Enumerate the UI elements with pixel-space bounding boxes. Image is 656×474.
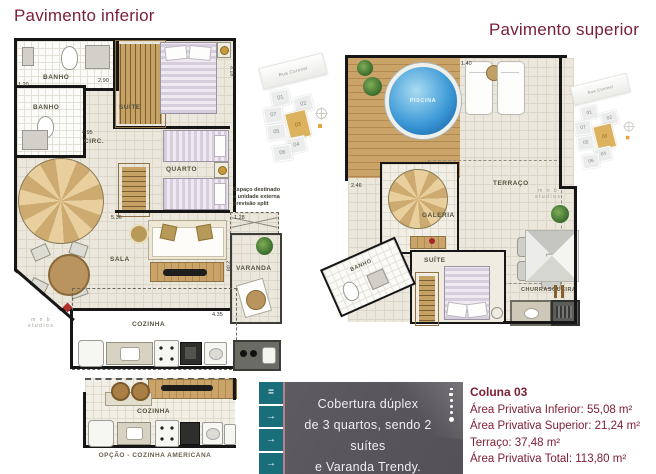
sink-counter <box>117 422 151 445</box>
oven-icon <box>180 422 200 445</box>
upper-floor-title: Pavimento superior <box>489 20 639 40</box>
lower-floor-plan: BANHO BANHO SUÍTE CIRC. QUARTO <box>14 38 284 378</box>
sink-counter <box>106 342 153 365</box>
room-label: COZINHA <box>132 321 165 328</box>
unit-info-line: Área Privativa Inferior: 55,08 m² <box>470 402 640 419</box>
compass-icon <box>624 122 634 132</box>
room-label: BANHO <box>43 74 69 81</box>
dim-label: 2.46 <box>351 183 362 189</box>
bathroom-2: BANHO <box>14 85 86 158</box>
banner-box: Cobertura dúplex de 3 quartos, sendo 2 s… <box>285 382 463 474</box>
banner-menu-icon[interactable]: = <box>259 382 283 404</box>
room-label: GALERIA <box>422 212 455 219</box>
dim-label: 2.08 <box>224 261 230 272</box>
pool: PISCINA <box>385 63 461 139</box>
gourmet-counter <box>233 340 281 371</box>
stove-icon <box>154 340 179 367</box>
compass-icon <box>316 108 327 119</box>
banner-nav-strip: = → → → <box>259 382 283 474</box>
banner-arrow-icon[interactable]: → <box>259 427 283 451</box>
suite-bed <box>444 266 490 320</box>
banner-arrow-icon[interactable]: → <box>259 451 283 474</box>
banner-text: Cobertura dúplex de 3 quartos, sendo 2 s… <box>285 394 451 474</box>
plant-icon <box>256 237 273 255</box>
stool <box>491 307 503 319</box>
bedroom-bed-2 <box>163 178 229 210</box>
decor-red <box>429 238 435 244</box>
stool <box>111 382 130 401</box>
oven-icon <box>180 342 202 365</box>
room-label: BANHO <box>33 104 59 111</box>
side-table <box>129 224 149 244</box>
key-plan-unit: 06 <box>272 144 293 162</box>
room-label: BANHO <box>350 258 373 273</box>
balcony-table <box>246 290 266 310</box>
dim-label: 5.36 <box>111 215 122 221</box>
room-label: COZINHA <box>137 408 170 415</box>
dim-label: 1.28 <box>234 215 245 221</box>
key-plan-lower: Rua Coronel 01 02 07 03 05 04 06 <box>254 56 332 168</box>
room-label: TERRAÇO <box>493 180 529 187</box>
spiral-stairs <box>388 169 448 229</box>
banner-arrow-icon[interactable]: → <box>259 404 283 428</box>
key-plan-unit: 06 <box>582 153 601 169</box>
pergola-mark: ⌐ <box>546 249 551 259</box>
room-label: PISCINA <box>389 98 457 104</box>
dim-label: 4.95 <box>82 130 93 136</box>
dim-label: 2.90 <box>98 78 109 84</box>
tv-sideboard <box>150 262 224 282</box>
key-plan-unit: 05 <box>577 135 596 151</box>
option-caption: OPÇÃO - COZINHA AMERICANA <box>65 452 245 459</box>
dots-ornament <box>448 388 454 422</box>
suite-bed <box>160 42 217 114</box>
unit-info-panel: Coluna 03 Área Privativa Inferior: 55,08… <box>470 384 640 468</box>
kitchen-option-plan: COZINHA OPÇÃO - COZINHA AMERICANA <box>65 378 245 472</box>
stove-icon <box>155 420 179 447</box>
pergola-roof: ⌐ <box>525 230 579 282</box>
sideboard <box>410 236 446 249</box>
cabinet <box>224 424 236 445</box>
room-label: CHURRASQUEIRA <box>521 287 576 293</box>
nightstand <box>217 42 231 58</box>
unit-color-swatch <box>626 136 630 140</box>
plant-icon <box>551 205 569 223</box>
key-plan-upper: Rua Coronel 01 02 07 03 05 04 06 <box>566 76 635 175</box>
room-label: CIRC. <box>84 138 104 145</box>
room-label: VARANDA <box>236 265 272 272</box>
washtub-icon <box>202 422 223 445</box>
sofa <box>148 220 227 260</box>
sun-lounger <box>497 61 525 115</box>
toilet-icon <box>340 279 362 303</box>
shower-icon <box>22 130 48 150</box>
upper-suite: SUÍTE <box>410 250 506 324</box>
sink-icon <box>22 47 34 66</box>
sink-icon <box>366 268 389 290</box>
unit-info-line: Área Privativa Superior: 21,24 m² <box>470 418 640 435</box>
upper-floor-plan: PISCINA TERRAÇO GALERIA SUÍTE <box>345 55 590 375</box>
key-plan-unit: 07 <box>574 120 593 136</box>
unit-info-line: Terraço: 37,48 m² <box>470 435 640 452</box>
unit-info-title: Coluna 03 <box>470 384 640 401</box>
balcony: VARANDA <box>230 233 282 324</box>
dim-label: 1.40 <box>461 61 472 67</box>
unit-color-swatch <box>318 124 322 128</box>
street-band: Rua Coronel <box>258 52 327 89</box>
studio-watermark: m n bstudios <box>535 188 561 200</box>
lower-floor-title: Pavimento inferior <box>14 6 155 26</box>
dim-label: 4.35 <box>212 312 223 318</box>
grill-chimney <box>554 285 557 298</box>
plant-icon <box>363 77 382 96</box>
fridge-icon <box>88 420 114 447</box>
grill-chimney <box>561 285 564 298</box>
toilet-icon <box>61 46 78 70</box>
studio-watermark: m n bstudios <box>28 317 54 329</box>
room-label: SUÍTE <box>119 104 141 111</box>
dim-label: 3.18 <box>228 66 234 77</box>
washtub-icon <box>204 342 227 365</box>
key-plan-unit: 07 <box>263 106 284 124</box>
room-label: SALA <box>110 256 130 263</box>
shower-icon <box>85 45 110 69</box>
breakfast-counter <box>148 379 237 399</box>
dim-label: 1.20 <box>18 82 29 88</box>
bedroom-bed-1 <box>163 130 229 162</box>
room-label: QUARTO <box>166 166 197 173</box>
street-band: Rua Coronel <box>570 73 631 106</box>
bedroom-wardrobe <box>118 163 150 217</box>
stool <box>131 382 150 401</box>
spiral-stairs <box>18 158 104 244</box>
suite-closet <box>115 40 166 128</box>
unit-info-line: Área Privativa Total: 113,80 m² <box>470 451 640 468</box>
brochure-page: Pavimento inferior Pavimento superior BA… <box>0 0 656 474</box>
fridge-icon <box>78 340 104 367</box>
room-label: SUÍTE <box>424 257 446 264</box>
key-plan-unit: 05 <box>266 123 287 141</box>
nightstand <box>214 162 229 178</box>
plant-icon <box>357 60 373 76</box>
split-note: Espaço destinado a unidade externa previ… <box>233 187 295 208</box>
suite-wardrobe <box>415 272 439 326</box>
